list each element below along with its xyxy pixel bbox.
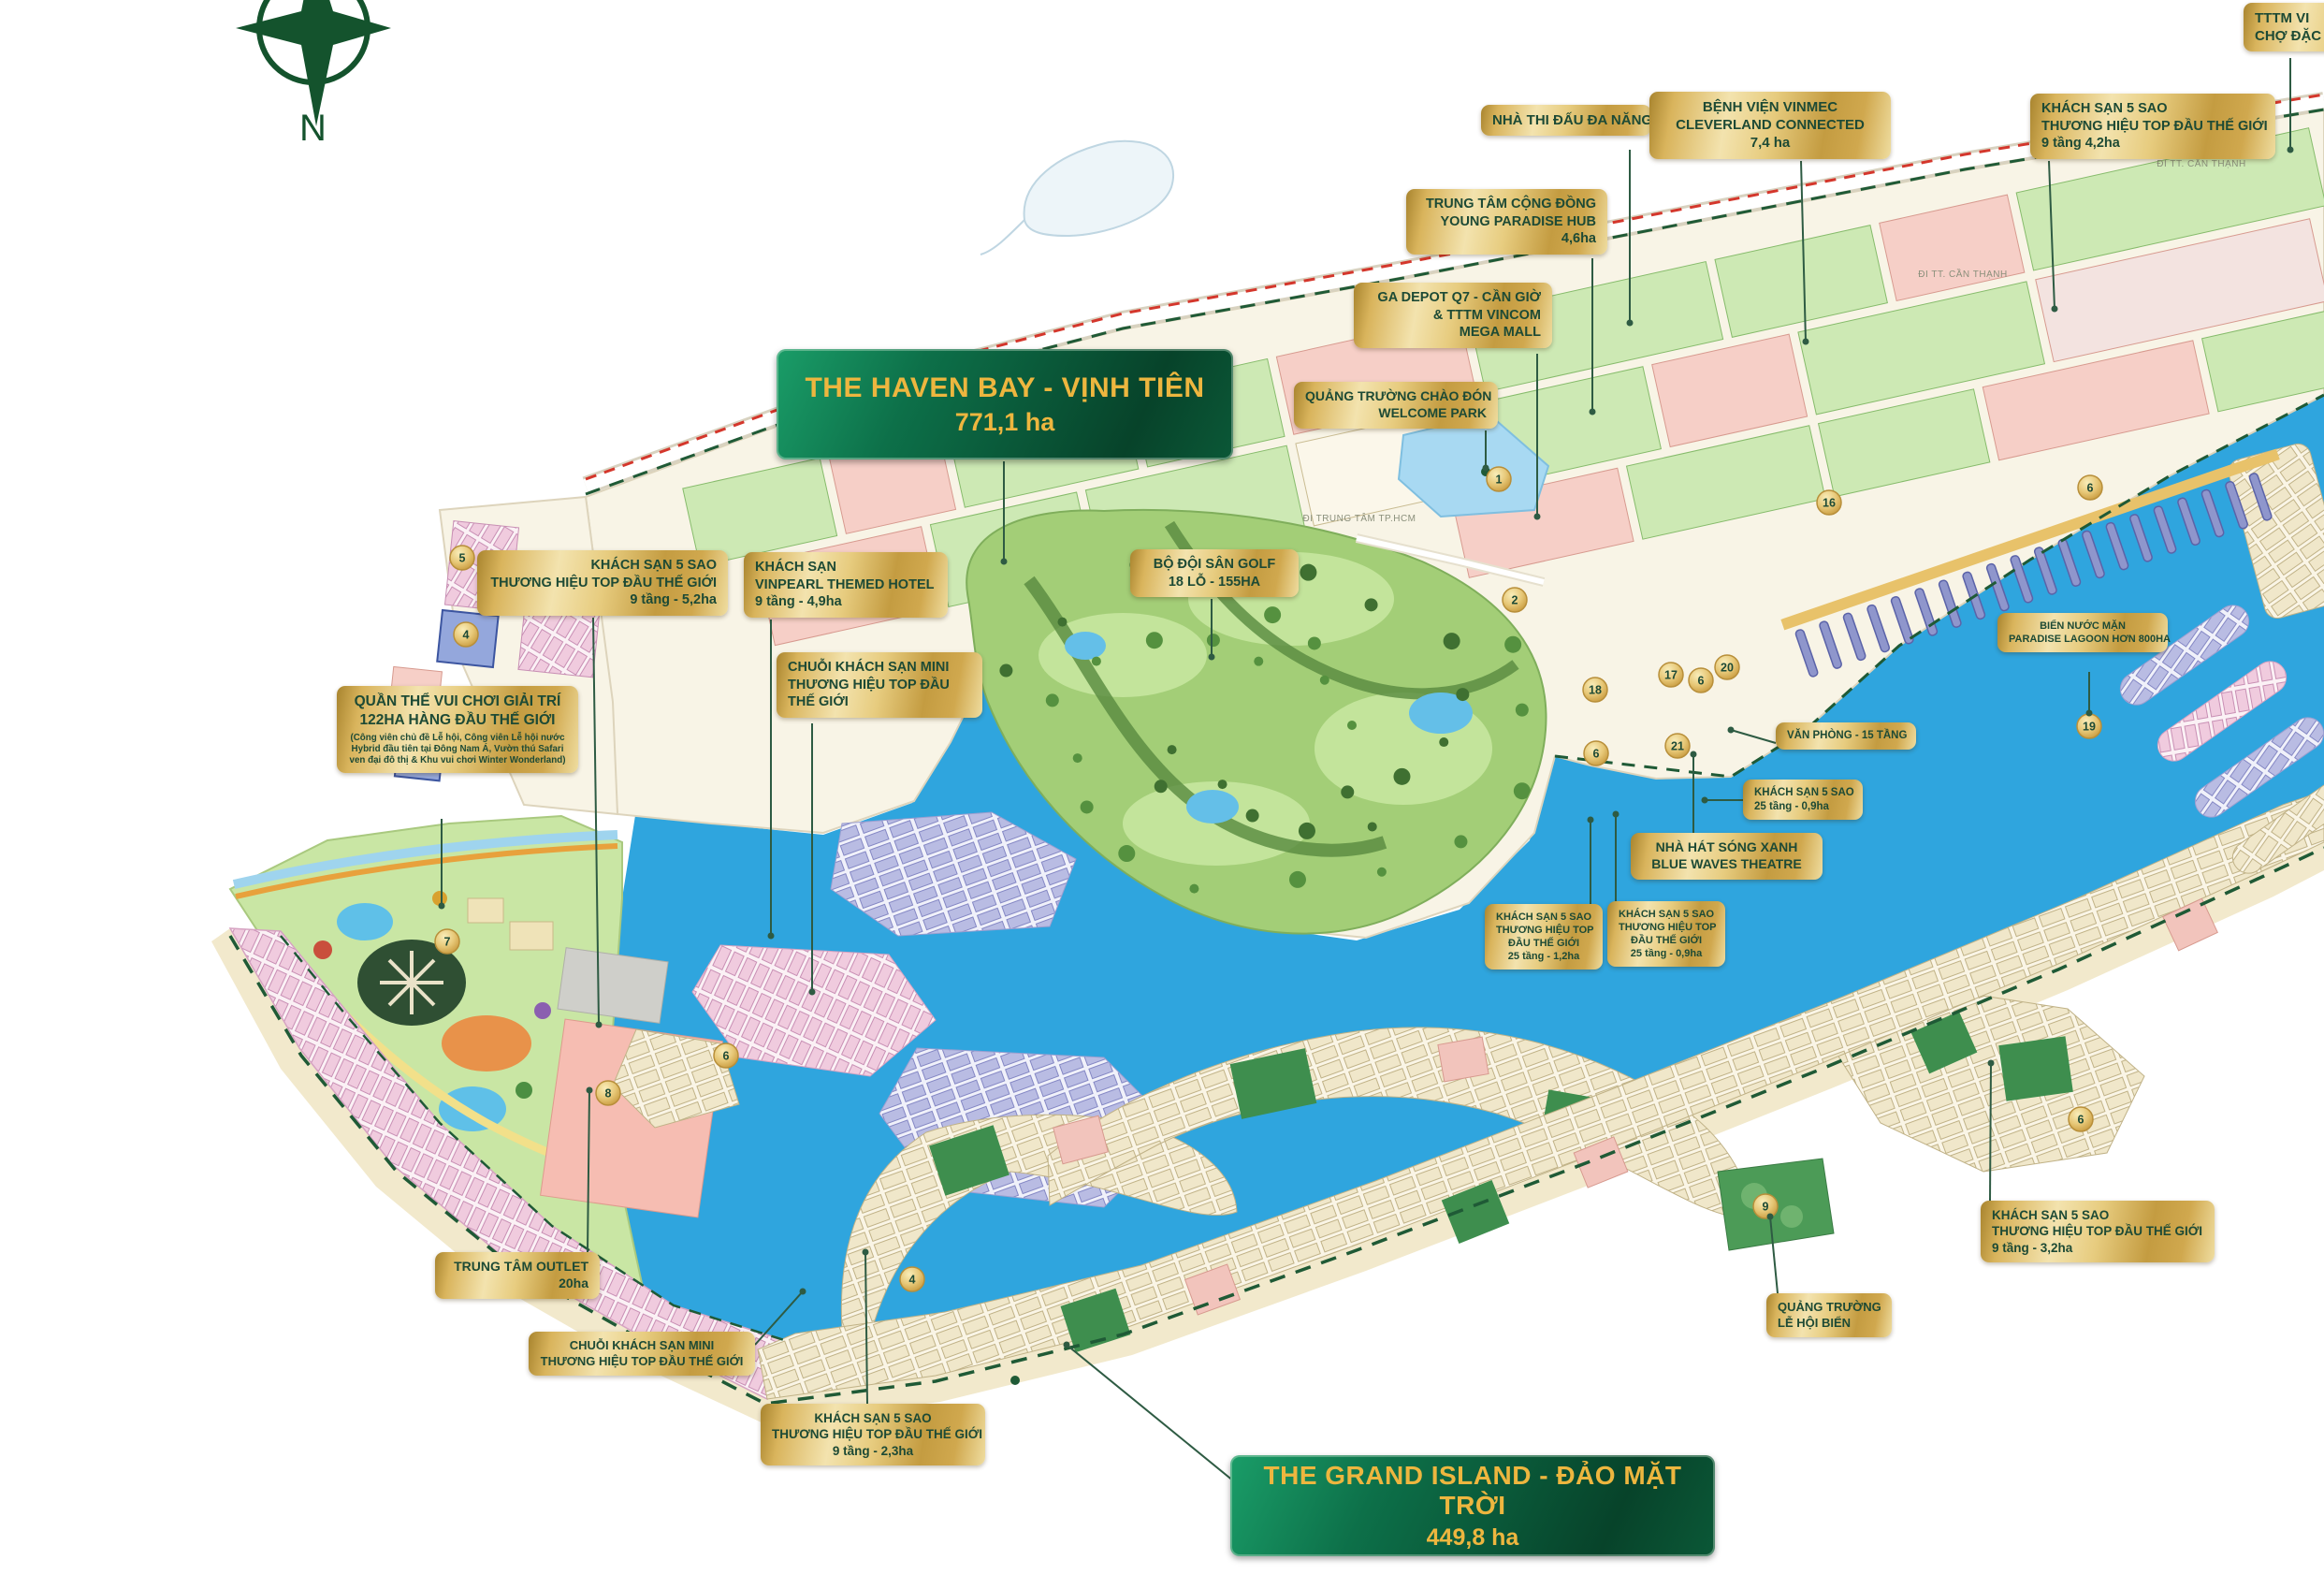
- callout-khach-san-25-09b-line: THƯƠNG HIỆU TOP: [1619, 921, 1714, 934]
- callout-khach-san-9-32-line: 9 tầng - 3,2ha: [1992, 1240, 2203, 1256]
- callout-quang-truong-chao-don: QUẢNG TRƯỜNG CHÀO ĐÓNWELCOME PARK: [1294, 382, 1498, 429]
- grand-island-title-name: THE GRAND ISLAND - ĐẢO MẶT TRỜI: [1230, 1461, 1715, 1521]
- svg-text:6: 6: [2078, 1114, 2084, 1127]
- map-marker-circle-18: 18: [1583, 678, 1607, 702]
- callout-khach-san-9-32: KHÁCH SẠN 5 SAOTHƯƠNG HIỆU TOP ĐẦU THẾ G…: [1981, 1201, 2215, 1262]
- callout-khach-san-25-12-line: ĐẦU THẾ GIỚI: [1496, 937, 1591, 950]
- callout-khach-san-5-sao-52: KHÁCH SẠN 5 SAOTHƯƠNG HIỆU TOP ĐẦU THẾ G…: [477, 550, 728, 616]
- callout-khach-san-vinpearl: KHÁCH SẠNVINPEARL THEMED HOTEL9 tầng - 4…: [744, 552, 948, 618]
- callout-quang-truong-chao-don-line: WELCOME PARK: [1305, 405, 1487, 422]
- callout-khach-san-9-23-line: 9 tầng - 2,3ha: [772, 1443, 974, 1459]
- callout-khach-san-25-09b-line: 25 tầng - 0,9ha: [1619, 947, 1714, 960]
- callout-tttm-cho-dac-san-line: TTTM VI: [2255, 9, 2324, 27]
- svg-text:4: 4: [909, 1274, 916, 1287]
- callout-trung-tam-cong-dong-line: YOUNG PARADISE HUB: [1417, 213, 1596, 231]
- callout-nha-hat-song-xanh: NHÀ HÁT SÓNG XANHBLUE WAVES THEATRE: [1631, 833, 1823, 880]
- svg-text:1: 1: [1496, 474, 1503, 487]
- map-marker-circle-4: 4: [900, 1267, 924, 1291]
- masterplan-map: 12166181720621619978654546 ĐI TT. CẦN TH…: [0, 0, 2324, 1589]
- callout-quan-the-vui-choi-line: 122HA HÀNG ĐẦU THẾ GIỚI: [348, 711, 567, 730]
- map-marker-circle-21: 21: [1665, 734, 1690, 758]
- callout-khach-san-25-09b: KHÁCH SẠN 5 SAOTHƯƠNG HIỆU TOPĐẦU THẾ GI…: [1607, 901, 1725, 967]
- map-marker-circle-6: 6: [2078, 475, 2102, 500]
- callout-chuoi-khach-san-mini-bottom-line: CHUỖI KHÁCH SẠN MINI: [540, 1338, 744, 1354]
- map-marker-circle-17: 17: [1659, 663, 1683, 687]
- callout-benh-vien-vinmec-line: CLEVERLAND CONNECTED: [1661, 116, 1880, 134]
- callout-khach-san-25-12-line: KHÁCH SẠN 5 SAO: [1496, 911, 1591, 924]
- map-marker-circle-6: 6: [714, 1043, 738, 1068]
- svg-text:9: 9: [1763, 1201, 1769, 1214]
- callout-khach-san-25-12-line: THƯƠNG HIỆU TOP: [1496, 924, 1591, 937]
- callout-quang-truong-le-hoi-line: LỄ HỘI BIỂN: [1778, 1316, 1881, 1332]
- svg-text:6: 6: [1593, 748, 1600, 761]
- masterplan-map-page: 12166181720621619978654546 ĐI TT. CẦN TH…: [0, 0, 2324, 1589]
- svg-text:6: 6: [2087, 482, 2094, 495]
- callout-bien-nuoc-man-line: PARADISE LAGOON HƠN 800HA: [2009, 633, 2157, 646]
- callout-trung-tam-cong-dong: TRUNG TÂM CỘNG ĐỒNGYOUNG PARADISE HUB4,6…: [1406, 189, 1607, 255]
- callout-bo-doi-san-golf: BỘ ĐỘI SÂN GOLF18 LỖ - 155HA: [1130, 549, 1299, 597]
- svg-text:6: 6: [1698, 675, 1705, 688]
- callout-khach-san-25-12-line: 25 tầng - 1,2ha: [1496, 950, 1591, 963]
- callout-van-phong: VĂN PHÒNG - 15 TẦNG: [1776, 722, 1916, 750]
- callout-quan-the-vui-choi-smalltext: (Công viên chủ đề Lễ hội, Công viên Lễ h…: [348, 733, 567, 767]
- map-marker-circle-8: 8: [596, 1081, 620, 1105]
- callout-quang-truong-le-hoi: QUẢNG TRƯỜNGLỄ HỘI BIỂN: [1766, 1293, 1892, 1337]
- callout-van-phong-line: VĂN PHÒNG - 15 TẦNG: [1787, 729, 1905, 743]
- callout-nha-hat-song-xanh-line: BLUE WAVES THEATRE: [1642, 856, 1811, 873]
- callout-tttm-cho-dac-san: TTTM VICHỢ ĐẶC SẢ: [2244, 3, 2324, 51]
- haven-bay-title: THE HAVEN BAY - VỊNH TIÊN 771,1 ha: [777, 349, 1233, 459]
- svg-text:4: 4: [463, 629, 470, 642]
- callout-quan-the-vui-choi: QUẦN THỂ VUI CHƠI GIẢI TRÍ122HA HÀNG ĐẦU…: [337, 686, 578, 773]
- callout-bo-doi-san-golf-line: 18 LỖ - 155HA: [1141, 574, 1287, 591]
- svg-text:19: 19: [2083, 721, 2096, 734]
- grand-island-title-area: 449,8 ha: [1230, 1524, 1715, 1552]
- callout-khach-san-5-sao-42-line: KHÁCH SẠN 5 SAO: [2041, 100, 2264, 118]
- map-marker-circle-19: 19: [2077, 714, 2101, 738]
- callout-bien-nuoc-man: BIỂN NƯỚC MẶNPARADISE LAGOON HƠN 800HA: [1997, 613, 2168, 652]
- road-label: ĐI TT. CẦN THẠNH: [2157, 157, 2245, 169]
- callout-khach-san-9-23-line: KHÁCH SẠN 5 SAO: [772, 1410, 974, 1426]
- map-marker-circle-4: 4: [454, 622, 478, 647]
- callout-benh-vien-vinmec-line: 7,4 ha: [1661, 134, 1880, 152]
- map-marker-circle-16: 16: [1817, 490, 1841, 515]
- callout-khach-san-vinpearl-line: 9 tầng - 4,9ha: [755, 593, 937, 611]
- map-marker-circle-6: 6: [2069, 1107, 2093, 1131]
- map-marker-circle-1: 1: [1487, 467, 1511, 491]
- road-label: ĐI TRUNG TÂM TP.HCM: [1303, 512, 1416, 524]
- svg-text:5: 5: [459, 552, 466, 565]
- callout-trung-tam-outlet: TRUNG TÂM OUTLET20ha: [435, 1252, 600, 1299]
- callout-khach-san-vinpearl-line: VINPEARL THEMED HOTEL: [755, 576, 937, 594]
- callout-khach-san-9-23: KHÁCH SẠN 5 SAOTHƯƠNG HIỆU TOP ĐẦU THẾ G…: [761, 1404, 985, 1465]
- callout-khach-san-5-sao-42-line: 9 tầng 4,2ha: [2041, 135, 2264, 153]
- callout-khach-san-25-09b-line: ĐẦU THẾ GIỚI: [1619, 934, 1714, 947]
- callout-bo-doi-san-golf-line: BỘ ĐỘI SÂN GOLF: [1141, 556, 1287, 574]
- callout-chuoi-khach-san-mini-bottom-line: THƯƠNG HIỆU TOP ĐẦU THẾ GIỚI: [540, 1354, 744, 1370]
- callout-ga-depot: GA DEPOT Q7 - CẦN GIỜ& TTTM VINCOMMEGA M…: [1354, 283, 1552, 348]
- callout-khach-san-5-sao-52-line: KHÁCH SẠN 5 SAO: [488, 557, 717, 575]
- svg-text:18: 18: [1589, 684, 1602, 697]
- callout-khach-san-9-23-line: THƯƠNG HIỆU TOP ĐẦU THẾ GIỚI: [772, 1426, 974, 1442]
- svg-text:16: 16: [1823, 497, 1836, 510]
- callout-trung-tam-outlet-line: TRUNG TÂM OUTLET: [446, 1259, 588, 1276]
- svg-text:20: 20: [1721, 662, 1734, 675]
- road-label: ĐI TT. CẦN THẠNH: [1918, 268, 2007, 280]
- compass-n-label: N: [299, 108, 328, 150]
- map-marker-circle-6: 6: [1689, 668, 1713, 692]
- callout-khach-san-5-sao-42: KHÁCH SẠN 5 SAOTHƯƠNG HIỆU TOP ĐẦU THẾ G…: [2030, 94, 2275, 159]
- callout-khach-san-5-sao-52-line: 9 tầng - 5,2ha: [488, 591, 717, 609]
- callout-chuoi-khach-san-mini-bottom: CHUỖI KHÁCH SẠN MINITHƯƠNG HIỆU TOP ĐẦU …: [529, 1332, 755, 1376]
- callout-chuoi-khach-san-mini-top-line: THẾ GIỚI: [788, 693, 971, 711]
- haven-bay-title-area: 771,1 ha: [777, 408, 1233, 437]
- svg-text:6: 6: [723, 1050, 730, 1063]
- callout-khach-san-vinpearl-line: KHÁCH SẠN: [755, 559, 937, 576]
- grand-island-title: THE GRAND ISLAND - ĐẢO MẶT TRỜI 449,8 ha: [1230, 1455, 1715, 1556]
- callout-tttm-cho-dac-san-line: CHỢ ĐẶC SẢ: [2255, 27, 2324, 45]
- callout-quan-the-vui-choi-line: QUẦN THỂ VUI CHƠI GIẢI TRÍ: [348, 692, 567, 711]
- callout-bien-nuoc-man-line: BIỂN NƯỚC MẶN: [2009, 620, 2157, 633]
- callout-trung-tam-cong-dong-line: TRUNG TÂM CỘNG ĐỒNG: [1417, 196, 1596, 213]
- callout-khach-san-9-32-line: THƯƠNG HIỆU TOP ĐẦU THẾ GIỚI: [1992, 1223, 2203, 1239]
- callout-khach-san-25-09a-line: 25 tầng - 0,9ha: [1754, 800, 1852, 814]
- svg-text:7: 7: [444, 936, 451, 949]
- callout-nha-hat-song-xanh-line: NHÀ HÁT SÓNG XANH: [1642, 839, 1811, 856]
- callout-trung-tam-outlet-line: 20ha: [446, 1276, 588, 1292]
- callout-khach-san-25-09a-line: KHÁCH SẠN 5 SAO: [1754, 786, 1852, 800]
- callout-chuoi-khach-san-mini-top: CHUỖI KHÁCH SẠN MINITHƯƠNG HIỆU TOP ĐẦUT…: [777, 652, 982, 718]
- callout-ga-depot-line: MEGA MALL: [1365, 324, 1541, 342]
- callout-khach-san-25-09a: KHÁCH SẠN 5 SAO25 tầng - 0,9ha: [1743, 780, 1863, 820]
- callout-quang-truong-le-hoi-line: QUẢNG TRƯỜNG: [1778, 1300, 1881, 1316]
- map-marker-circle-5: 5: [450, 546, 474, 570]
- callout-benh-vien-vinmec: BỆNH VIỆN VINMECCLEVERLAND CONNECTED7,4 …: [1649, 92, 1891, 159]
- callout-benh-vien-vinmec-line: BỆNH VIỆN VINMEC: [1661, 98, 1880, 116]
- svg-text:17: 17: [1664, 669, 1678, 682]
- callout-trung-tam-cong-dong-line: 4,6ha: [1417, 230, 1596, 248]
- callout-khach-san-5-sao-42-line: THƯƠNG HIỆU TOP ĐẦU THẾ GIỚI: [2041, 118, 2264, 136]
- svg-text:2: 2: [1512, 594, 1518, 607]
- map-marker-circle-2: 2: [1503, 588, 1527, 612]
- callout-chuoi-khach-san-mini-top-line: THƯƠNG HIỆU TOP ĐẦU: [788, 677, 971, 694]
- callout-ga-depot-line: & TTTM VINCOM: [1365, 307, 1541, 325]
- callout-nha-thi-dau-line: NHÀ THI ĐẤU ĐA NĂNG: [1492, 111, 1640, 129]
- svg-text:21: 21: [1671, 740, 1684, 753]
- callout-nha-thi-dau: NHÀ THI ĐẤU ĐA NĂNG: [1481, 105, 1651, 136]
- map-marker-circle-20: 20: [1715, 655, 1739, 679]
- callout-khach-san-25-12: KHÁCH SẠN 5 SAOTHƯƠNG HIỆU TOPĐẦU THẾ GI…: [1485, 904, 1603, 969]
- callout-ga-depot-line: GA DEPOT Q7 - CẦN GIỜ: [1365, 289, 1541, 307]
- map-marker-circle-7: 7: [435, 929, 459, 954]
- haven-bay-title-name: THE HAVEN BAY - VỊNH TIÊN: [777, 372, 1233, 404]
- callout-khach-san-9-32-line: KHÁCH SẠN 5 SAO: [1992, 1207, 2203, 1223]
- map-marker-circle-6: 6: [1584, 741, 1608, 765]
- callout-quang-truong-chao-don-line: QUẢNG TRƯỜNG CHÀO ĐÓN: [1305, 388, 1487, 405]
- callout-khach-san-25-09b-line: KHÁCH SẠN 5 SAO: [1619, 908, 1714, 921]
- svg-text:8: 8: [605, 1087, 612, 1101]
- callout-khach-san-5-sao-52-line: THƯƠNG HIỆU TOP ĐẦU THẾ GIỚI: [488, 575, 717, 592]
- callout-chuoi-khach-san-mini-top-line: CHUỖI KHÁCH SẠN MINI: [788, 659, 971, 677]
- map-marker-circle-9: 9: [1753, 1194, 1778, 1218]
